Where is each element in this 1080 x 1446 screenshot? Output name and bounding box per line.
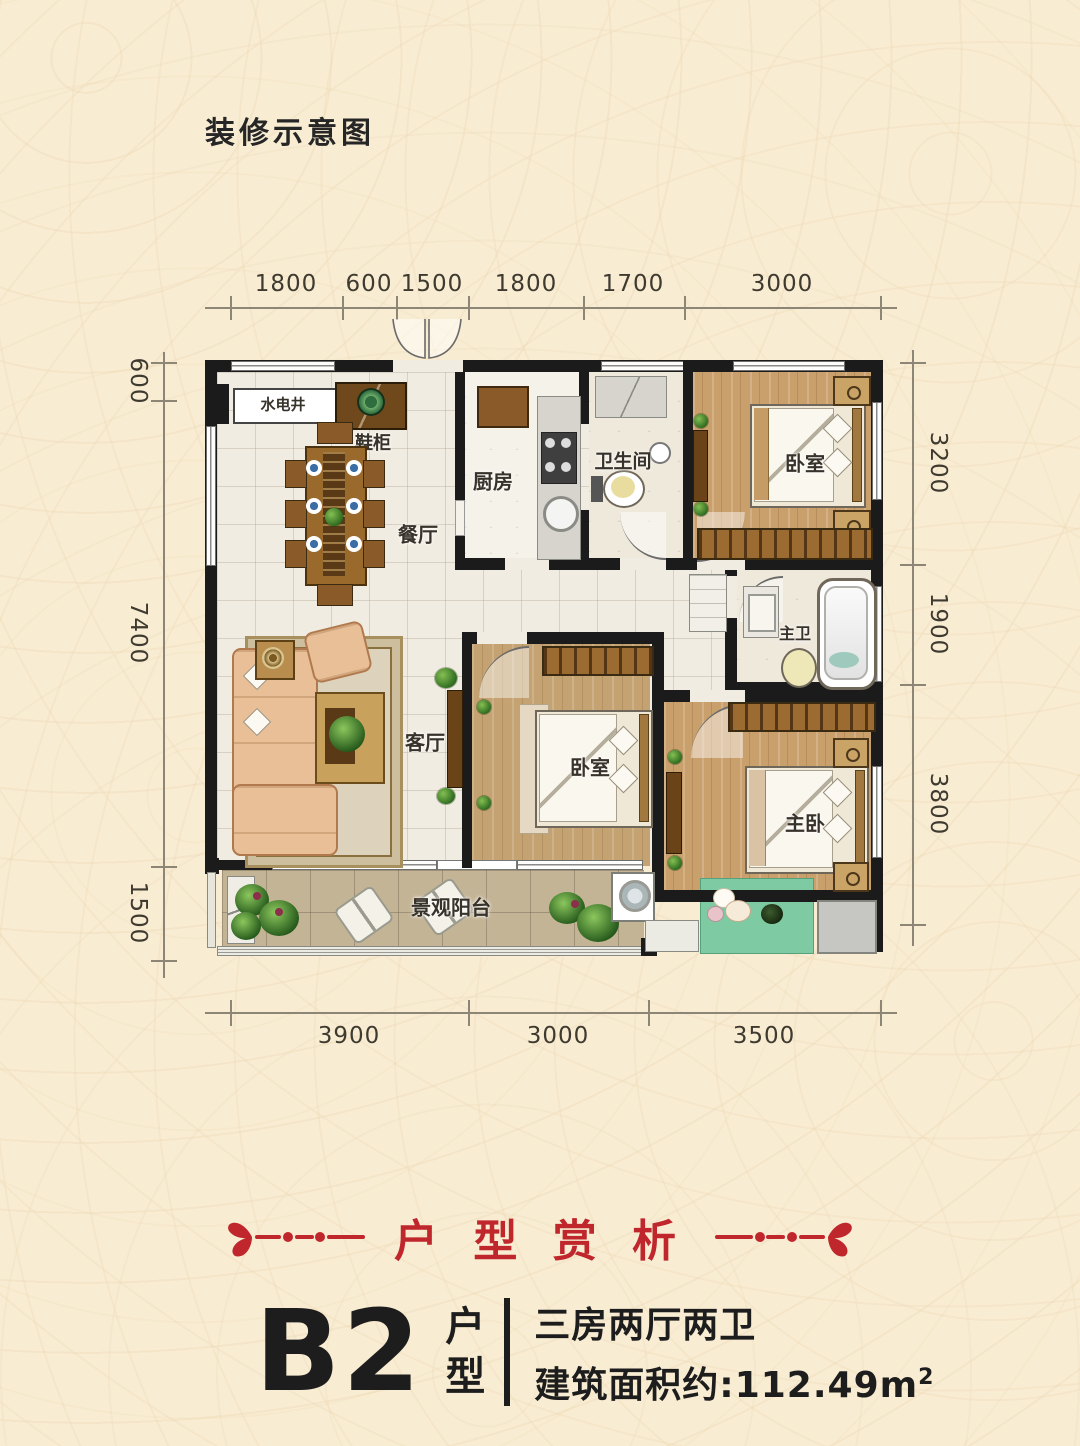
plate: [306, 498, 322, 514]
dim-right-3: 3800: [925, 773, 951, 836]
unit-area-sup: 2: [918, 1365, 934, 1390]
dim-top-5: 1700: [602, 271, 665, 297]
ac-pad-small: [645, 920, 699, 952]
dining-chair: [317, 422, 353, 444]
ornament-right-icon: [712, 1215, 858, 1259]
dim-bottom-2: 3000: [527, 1023, 590, 1049]
bathroom-door-opening: [620, 558, 666, 570]
bed-headboard: [639, 714, 649, 822]
dim-left-3: 1500: [125, 882, 151, 945]
entry-opening: [393, 360, 463, 372]
plant: [477, 796, 491, 810]
wall-bedroom-mid-left: [462, 632, 472, 868]
room-label-bathroom: 卫生间: [594, 447, 651, 474]
bedroom-mid-door-opening: [477, 632, 527, 644]
window-top-bath: [601, 361, 685, 371]
dining-chair: [285, 460, 307, 488]
plate: [346, 498, 362, 514]
flyer-page: { "page_title": "装修示意图", "floorplan": { …: [0, 0, 1080, 1446]
toilet-seat: [611, 476, 635, 498]
bed-headboard: [852, 408, 862, 502]
sofa-chaise: [232, 784, 338, 856]
dim-left-2: 7400: [125, 602, 151, 665]
window-right-masterbedroom: [872, 766, 882, 858]
stove-burner: [561, 438, 571, 448]
dining-centerpiece-plant: [325, 508, 343, 526]
dining-chair: [363, 540, 385, 568]
mat-plant: [761, 904, 783, 924]
dim-top-6: 3000: [751, 271, 814, 297]
unit-info: B2 户型 三房两厅两卫 建筑面积约:112.49m2: [255, 1296, 934, 1408]
dining-chair: [363, 500, 385, 528]
unit-area: 建筑面积约:112.49m2: [534, 1356, 934, 1408]
room-label-living: 客厅: [405, 727, 445, 756]
section-title: 户 型 赏 析: [394, 1205, 686, 1269]
window-top-left: [231, 361, 335, 371]
toilet-tank: [591, 476, 603, 502]
mat-bouquet: [725, 900, 751, 922]
dim-bottom-1: 3900: [318, 1023, 381, 1049]
dim-left-1: 600: [125, 358, 151, 405]
room-label-bedroom-top: 卧室: [785, 448, 825, 477]
side-table-lamp: [262, 647, 284, 669]
window-right-bedroom: [872, 402, 882, 500]
master-dresser: [666, 772, 682, 854]
balcony-door-opening: [437, 860, 517, 870]
ornament-left-icon: [222, 1215, 368, 1259]
window-top-bedroom: [733, 361, 845, 371]
stove-burner: [545, 438, 555, 448]
room-label-balcony: 景观阳台: [411, 892, 491, 921]
plant: [435, 668, 457, 688]
bedroom-top-wardrobe: [697, 528, 873, 560]
wall-bath-bedroom: [683, 360, 693, 570]
plant: [694, 414, 708, 428]
bathroom-counter: [595, 376, 667, 418]
room-label-master-bedroom: 主卧: [785, 808, 825, 837]
dim-top-2: 600: [346, 271, 393, 297]
plant: [694, 502, 708, 516]
bedroom-top-tv-console: [693, 430, 708, 502]
dim-top-4: 1800: [495, 271, 558, 297]
balcony-side-rail: [207, 872, 216, 948]
plant: [437, 788, 455, 804]
window-left-dining: [206, 426, 216, 566]
balcony-sliding-glass-2: [517, 860, 643, 870]
wall-shaft-block: [217, 384, 229, 424]
balcony-flower: [253, 892, 261, 900]
unit-type-label: 户型: [432, 1305, 490, 1405]
plant: [668, 750, 682, 764]
ac-pad: [817, 900, 877, 954]
bed-throw: [754, 408, 769, 500]
nightstand: [833, 862, 869, 892]
dim-bottom-3: 3500: [733, 1023, 796, 1049]
floor-plan: 水电井 鞋柜 餐厅 厨房 卫生间 卧室: [205, 360, 883, 965]
dining-chair: [317, 584, 353, 606]
stove-burner: [545, 462, 555, 472]
room-label-kitchen: 厨房: [473, 466, 513, 495]
kitchen-pass-column: [455, 500, 465, 536]
bed-headboard: [855, 770, 865, 868]
mat-bouquet: [707, 906, 724, 922]
balcony-flower: [571, 900, 579, 908]
dining-chair: [285, 540, 307, 568]
masterbedroom-door-opening: [690, 690, 745, 702]
nightstand: [833, 738, 869, 768]
entry-double-door: [389, 317, 465, 361]
unit-divider: [504, 1298, 510, 1406]
dining-chair: [363, 460, 385, 488]
plate: [346, 536, 362, 552]
plate: [306, 460, 322, 476]
dim-top-3: 1500: [401, 271, 464, 297]
kitchen-cabinet: [477, 386, 529, 428]
bathtub-pillow: [829, 652, 859, 668]
plate: [346, 460, 362, 476]
dim-right-1: 3200: [925, 432, 951, 495]
section-title-row: 户 型 赏 析: [0, 1205, 1080, 1269]
kitchen-sink: [543, 496, 579, 532]
masterbath-toilet: [781, 648, 817, 688]
coffee-table-plant: [329, 716, 365, 752]
room-label-bedroom-mid: 卧室: [570, 752, 610, 781]
balcony-railing: [217, 946, 643, 956]
stove-burner: [561, 462, 571, 472]
nightstand: [833, 376, 871, 406]
unit-layout: 三房两厅两卫: [534, 1296, 934, 1348]
balcony-plant: [231, 912, 261, 940]
washing-machine-drum: [619, 880, 651, 912]
balcony-flower: [275, 908, 283, 916]
shoe-cabinet-plate: [357, 388, 385, 416]
unit-code: B2: [255, 1296, 422, 1408]
room-label-dining: 餐厅: [398, 519, 438, 548]
tv-console: [447, 690, 463, 788]
bathroom-sink: [649, 442, 671, 464]
unit-area-text: 建筑面积约:112.49m: [534, 1365, 918, 1406]
plant: [668, 856, 682, 870]
bedroom-mid-wardrobe: [542, 646, 654, 676]
room-label-master-bath: 主卫: [779, 620, 811, 644]
dim-top-1: 1800: [255, 271, 318, 297]
room-label-shaft: 水电井: [260, 394, 305, 415]
master-wardrobe: [728, 702, 876, 732]
wall-kitchen-left: [455, 372, 465, 570]
balcony-plant: [259, 900, 299, 936]
masterbath-sink: [748, 594, 776, 632]
plate: [306, 536, 322, 552]
dim-right-2: 1900: [925, 593, 951, 656]
plant: [477, 700, 491, 714]
bed-throw: [749, 770, 766, 866]
hall-closet: [689, 574, 727, 632]
dining-chair: [285, 500, 307, 528]
page-title: 装修示意图: [205, 108, 375, 152]
